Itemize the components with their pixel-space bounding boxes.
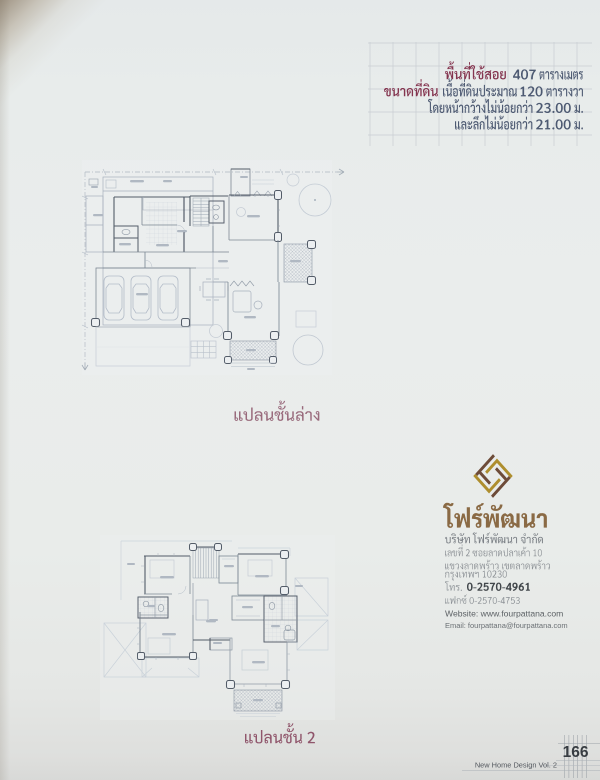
svg-text:166: 166 [563,744,589,761]
svg-text:Email: fourpattana@fourpattan: Email: fourpattana@fourpattana.com [445,621,568,630]
svg-text:Website: www.fourpattana.com: Website: www.fourpattana.com [445,609,563,619]
svg-text:New Home Design Vol. 2: New Home Design Vol. 2 [475,761,557,770]
